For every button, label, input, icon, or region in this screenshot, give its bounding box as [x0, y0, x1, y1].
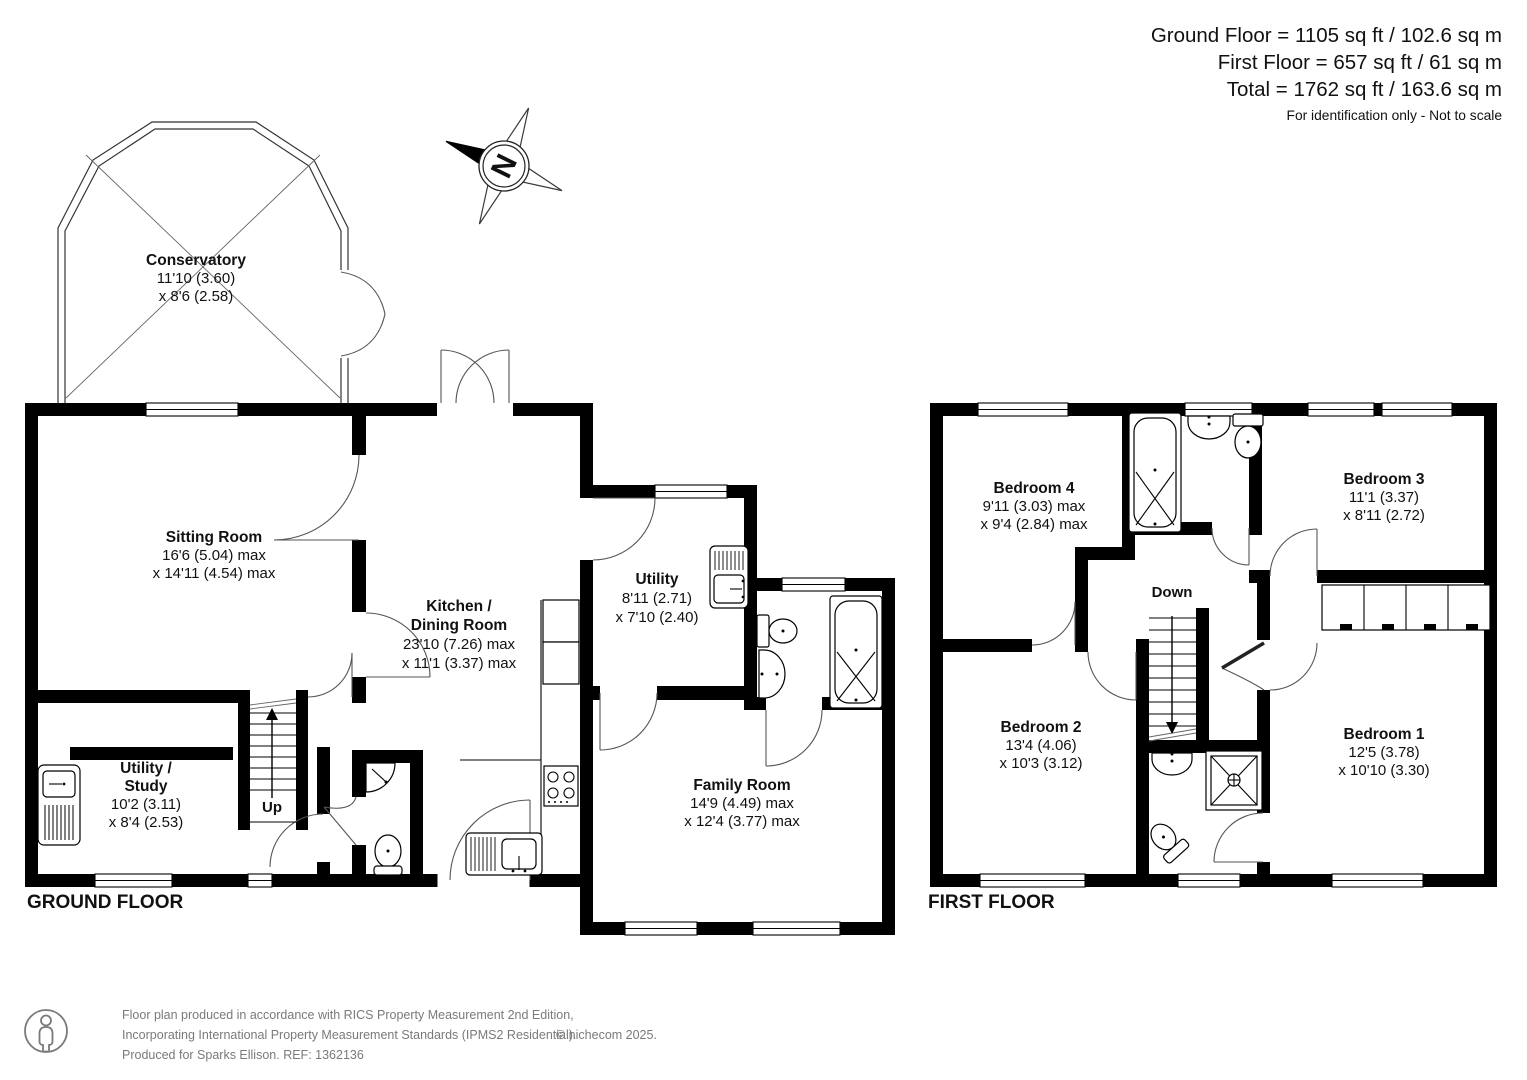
floor-plan-page: Ground Floor = 1105 sq ft / 102.6 sq m F…	[0, 0, 1527, 1080]
svg-text:Family Room: Family Room	[693, 777, 790, 794]
svg-text:x 14'11 (4.54) max: x 14'11 (4.54) max	[153, 565, 276, 582]
window	[1382, 403, 1452, 416]
first-floor-area-text: First Floor = 657 sq ft / 61 sq m	[1218, 51, 1502, 74]
area-summary: Ground Floor = 1105 sq ft / 102.6 sq m F…	[1151, 24, 1502, 123]
window	[655, 485, 727, 498]
room-label-kitchen-dining: Kitchen / Dining Room 23'10 (7.26) max x…	[402, 598, 517, 672]
first-floor-title: FIRST FLOOR	[928, 892, 1055, 913]
window	[1308, 403, 1374, 416]
first-bath-sink-icon	[1188, 416, 1230, 440]
window	[978, 403, 1068, 416]
toilet-icon	[757, 615, 797, 647]
svg-text:Dining Room: Dining Room	[411, 617, 507, 634]
first-floor-doors	[1032, 528, 1317, 862]
window	[980, 874, 1085, 887]
svg-text:13'4 (4.06): 13'4 (4.06)	[1005, 737, 1076, 754]
room-label-utility-study: Utility / Study 10'2 (3.11) x 8'4 (2.53)	[109, 760, 184, 831]
disclaimer-text: For identification only - Not to scale	[1287, 108, 1503, 123]
window	[1332, 874, 1423, 887]
window	[782, 578, 845, 591]
stairs-up-label: Up	[262, 799, 282, 816]
svg-text:x 9'4 (2.84) max: x 9'4 (2.84) max	[980, 516, 1088, 533]
bath-icon	[830, 596, 882, 708]
svg-text:x 12'4 (3.77) max: x 12'4 (3.77) max	[684, 813, 800, 830]
svg-text:Study: Study	[124, 778, 167, 795]
svg-text:16'6 (5.04) max: 16'6 (5.04) max	[162, 547, 266, 564]
kitchen-sink-icon	[466, 833, 542, 875]
svg-text:x 7'10 (2.40): x 7'10 (2.40)	[616, 609, 699, 626]
svg-text:12'5 (3.78): 12'5 (3.78)	[1348, 744, 1419, 761]
footer-line1: Floor plan produced in accordance with R…	[122, 1008, 574, 1022]
utility-sink-icon	[710, 546, 748, 608]
patio-double-door	[437, 350, 513, 416]
ground-floor-plan: Up	[25, 122, 895, 935]
svg-text:x 8'4 (2.53): x 8'4 (2.53)	[109, 814, 184, 831]
svg-text:x 10'10 (3.30): x 10'10 (3.30)	[1338, 762, 1429, 779]
first-floor-plan: Down	[928, 403, 1497, 913]
room-label-family-room: Family Room 14'9 (4.49) max x 12'4 (3.77…	[684, 777, 800, 830]
footer: Floor plan produced in accordance with R…	[25, 1008, 657, 1062]
window	[753, 922, 840, 935]
compass-rose-icon: N	[421, 83, 586, 248]
svg-text:10'2 (3.11): 10'2 (3.11)	[111, 796, 181, 813]
svg-text:x 8'6 (2.58): x 8'6 (2.58)	[159, 288, 234, 305]
window	[146, 403, 238, 416]
svg-text:x 8'11 (2.72): x 8'11 (2.72)	[1343, 507, 1425, 524]
built-in-wardrobe	[1322, 585, 1490, 630]
room-label-sitting-room: Sitting Room 16'6 (5.04) max x 14'11 (4.…	[153, 529, 276, 582]
shower-icon	[1206, 751, 1262, 810]
first-bath-icon	[1129, 413, 1181, 532]
svg-text:x 11'1 (3.37) max: x 11'1 (3.37) max	[402, 655, 517, 672]
svg-text:11'10 (3.60): 11'10 (3.60)	[157, 270, 235, 287]
wc-corner-sink-icon	[366, 763, 395, 792]
svg-text:Sitting Room: Sitting Room	[166, 529, 262, 546]
svg-text:x 10'3 (3.12): x 10'3 (3.12)	[1000, 755, 1083, 772]
ensuite-toilet-icon	[1144, 817, 1190, 864]
stairs-down: Down	[1149, 584, 1196, 741]
study-sink-washer-icon	[38, 765, 80, 845]
window	[95, 874, 172, 887]
window	[625, 922, 697, 935]
svg-text:Conservatory: Conservatory	[146, 252, 246, 269]
total-area-text: Total = 1762 sq ft / 163.6 sq m	[1227, 78, 1502, 101]
room-label-bedroom-4: Bedroom 4 9'11 (3.03) max x 9'4 (2.84) m…	[980, 480, 1088, 533]
svg-text:Bedroom 3: Bedroom 3	[1344, 471, 1425, 488]
footer-copyright: © nichecom 2025.	[556, 1028, 657, 1042]
window	[248, 874, 272, 887]
window	[1178, 874, 1240, 887]
svg-text:Utility: Utility	[635, 571, 678, 588]
pedestal-sink-icon	[759, 650, 785, 698]
svg-text:11'1 (3.37): 11'1 (3.37)	[1349, 489, 1419, 506]
room-label-conservatory: Conservatory 11'10 (3.60) x 8'6 (2.58)	[146, 252, 246, 305]
room-label-bedroom-3: Bedroom 3 11'1 (3.37) x 8'11 (2.72)	[1343, 471, 1425, 524]
stairs-down-label: Down	[1152, 584, 1193, 601]
room-label-utility: Utility 8'11 (2.71) x 7'10 (2.40)	[616, 571, 699, 626]
wc-toilet-icon	[374, 835, 402, 875]
hob-icon	[544, 766, 578, 806]
room-label-bedroom-2: Bedroom 2 13'4 (4.06) x 10'3 (3.12)	[1000, 719, 1083, 772]
svg-text:14'9 (4.49) max: 14'9 (4.49) max	[690, 795, 794, 812]
svg-text:Utility /: Utility /	[120, 760, 172, 777]
svg-text:Bedroom 1: Bedroom 1	[1344, 726, 1425, 743]
svg-text:8'11 (2.71): 8'11 (2.71)	[622, 590, 692, 607]
footer-line3: Produced for Sparks Ellison. REF: 136213…	[122, 1048, 364, 1062]
svg-text:23'10 (7.26) max: 23'10 (7.26) max	[403, 636, 516, 653]
svg-text:9'11 (3.03) max: 9'11 (3.03) max	[983, 498, 1086, 515]
person-icon	[25, 1010, 67, 1052]
svg-text:Bedroom 2: Bedroom 2	[1001, 719, 1082, 736]
ground-floor-area-text: Ground Floor = 1105 sq ft / 102.6 sq m	[1151, 24, 1502, 47]
ensuite-sink-icon	[1152, 753, 1192, 776]
footer-line2: Incorporating International Property Mea…	[122, 1028, 576, 1042]
svg-text:Kitchen /: Kitchen /	[426, 598, 492, 615]
room-label-bedroom-1: Bedroom 1 12'5 (3.78) x 10'10 (3.30)	[1338, 726, 1429, 779]
first-bath-toilet-icon	[1233, 414, 1263, 458]
ground-floor-title: GROUND FLOOR	[27, 892, 183, 913]
svg-text:Bedroom 4: Bedroom 4	[994, 480, 1075, 497]
stairs-up: Up	[250, 699, 296, 822]
